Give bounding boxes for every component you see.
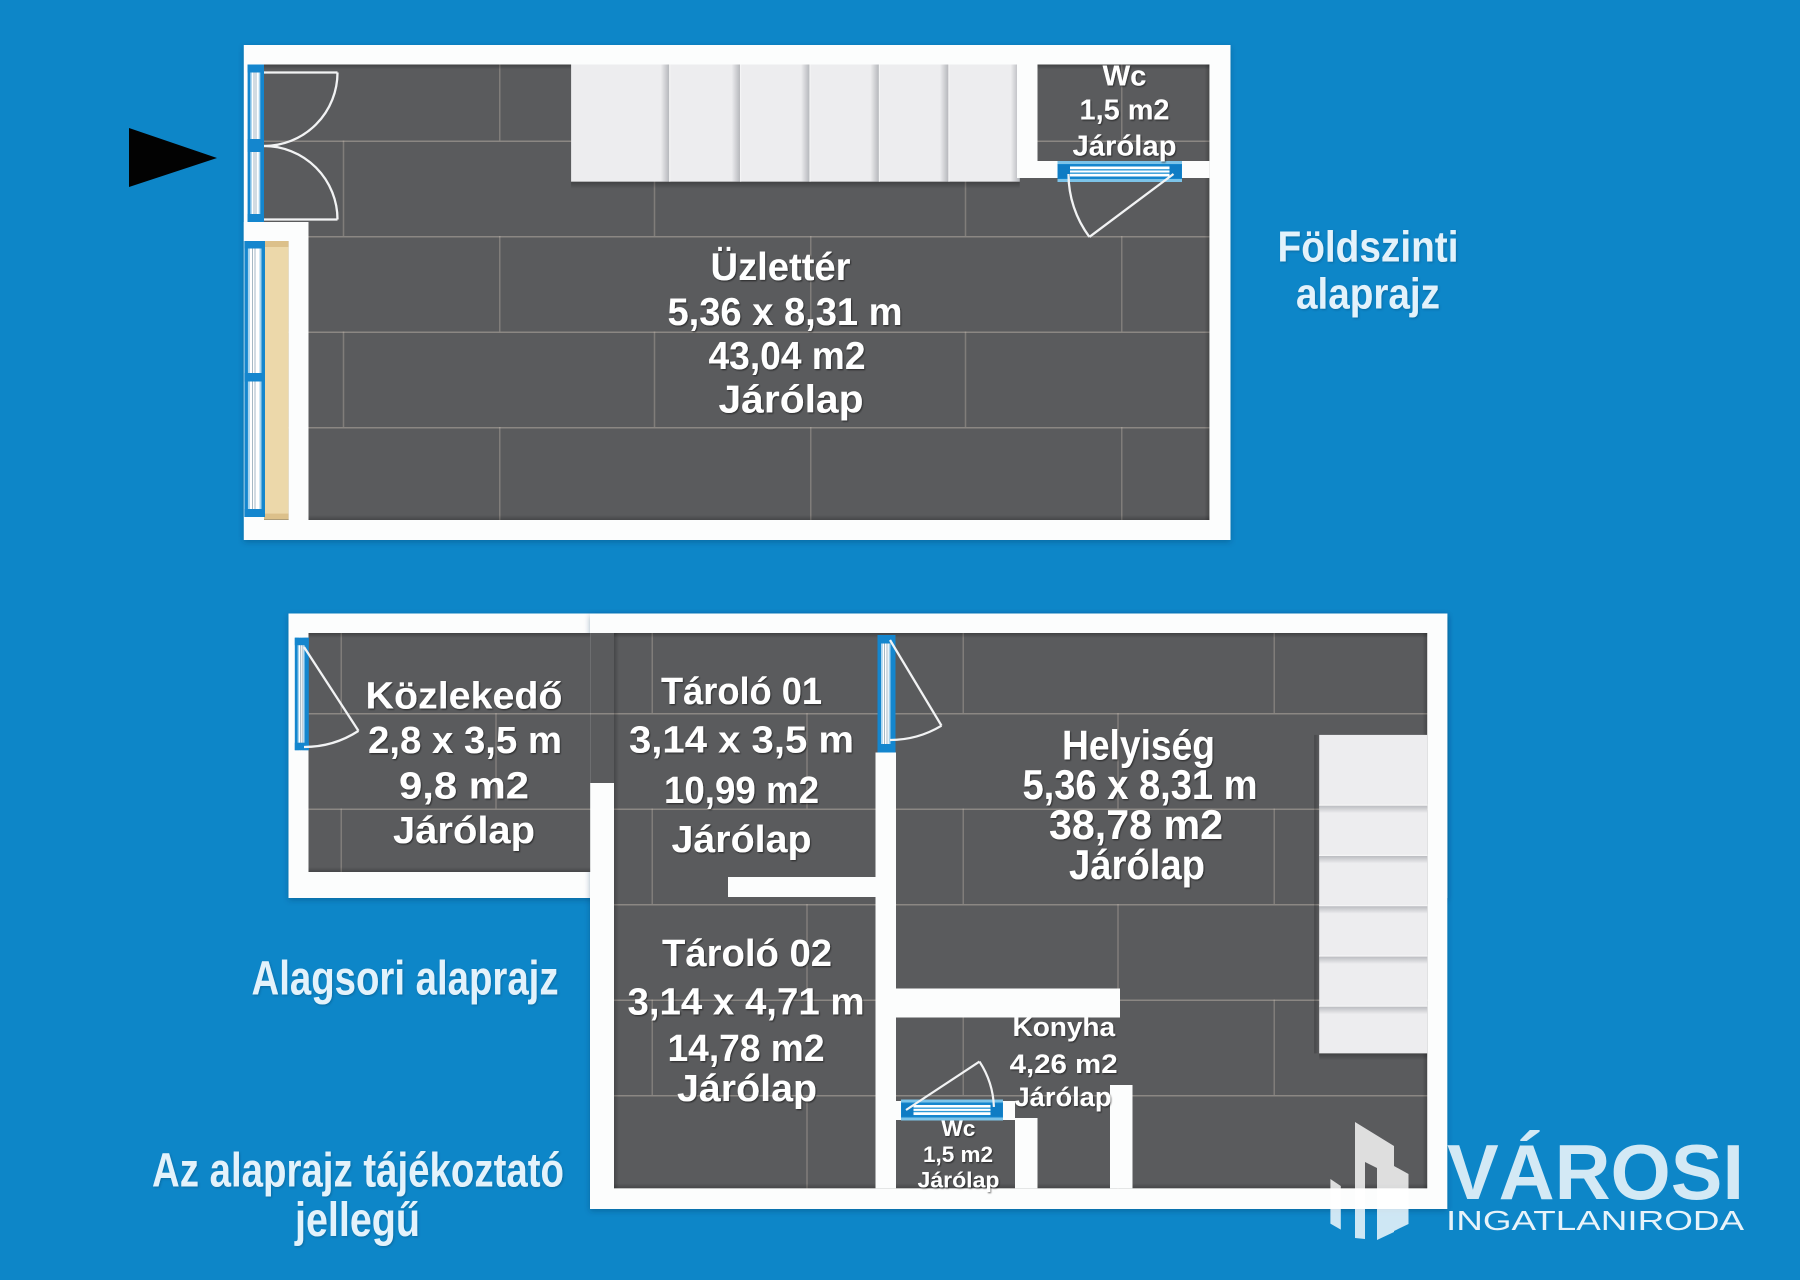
- svg-text:jellegű: jellegű: [294, 1194, 420, 1247]
- svg-text:1,5 m2: 1,5 m2: [1080, 95, 1170, 127]
- svg-text:Járólap: Járólap: [393, 810, 535, 852]
- svg-text:Járólap: Járólap: [677, 1068, 817, 1110]
- svg-text:1,5 m2: 1,5 m2: [923, 1142, 993, 1167]
- svg-text:Üzlettér: Üzlettér: [711, 246, 851, 289]
- svg-text:INGATLANIRODA: INGATLANIRODA: [1446, 1205, 1744, 1236]
- svg-text:3,14 x 3,5 m: 3,14 x 3,5 m: [629, 720, 854, 762]
- svg-text:Járólap: Járólap: [719, 379, 864, 422]
- svg-text:Konyha: Konyha: [1013, 1012, 1117, 1042]
- svg-text:Tároló 02: Tároló 02: [662, 933, 832, 975]
- svg-text:Járólap: Járólap: [672, 819, 812, 861]
- svg-text:Az alaprajz tájékoztató: Az alaprajz tájékoztató: [152, 1145, 564, 1198]
- svg-text:Járólap: Járólap: [1015, 1082, 1112, 1112]
- svg-text:2,8 x 3,5 m: 2,8 x 3,5 m: [368, 720, 562, 762]
- svg-text:Wc: Wc: [941, 1116, 975, 1141]
- svg-text:3,14 x 4,71 m: 3,14 x 4,71 m: [628, 982, 865, 1024]
- svg-text:9,8 m2: 9,8 m2: [399, 766, 529, 808]
- svg-text:5,36 x 8,31 m: 5,36 x 8,31 m: [668, 291, 903, 334]
- svg-text:4,26 m2: 4,26 m2: [1010, 1049, 1118, 1079]
- svg-text:Alagsori alaprajz: Alagsori alaprajz: [252, 953, 559, 1006]
- svg-text:Közlekedő: Közlekedő: [366, 676, 563, 718]
- svg-text:Wc: Wc: [1103, 60, 1147, 92]
- svg-text:Járólap: Járólap: [918, 1167, 1000, 1192]
- svg-text:VÁROSI: VÁROSI: [1447, 1128, 1744, 1216]
- svg-text:10,99 m2: 10,99 m2: [664, 770, 819, 812]
- svg-text:Földszinti: Földszinti: [1278, 223, 1459, 272]
- svg-text:14,78 m2: 14,78 m2: [668, 1028, 825, 1070]
- svg-text:Járólap: Járólap: [1069, 841, 1205, 888]
- svg-text:Járólap: Járólap: [1073, 130, 1177, 162]
- svg-text:Tároló 01: Tároló 01: [661, 671, 822, 713]
- svg-text:alaprajz: alaprajz: [1296, 269, 1440, 318]
- svg-text:43,04 m2: 43,04 m2: [709, 335, 866, 378]
